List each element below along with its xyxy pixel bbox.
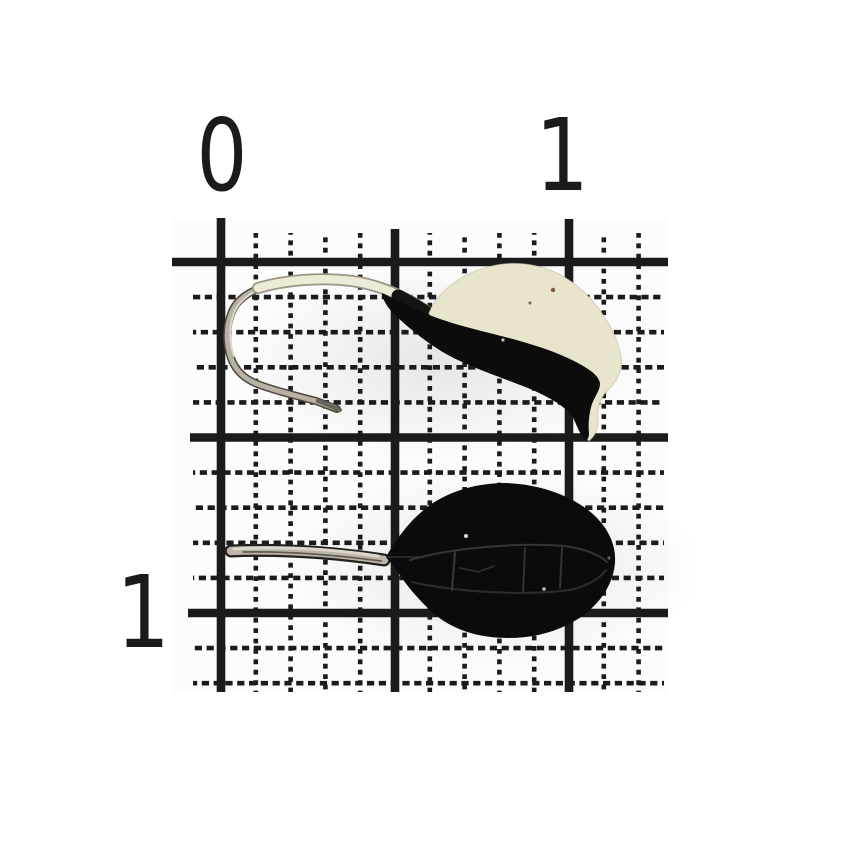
speck-gray [529, 302, 532, 305]
body-glint-1 [464, 534, 468, 538]
photo-of-jigs-on-graph-paper: 0 1 1 [0, 0, 850, 850]
body-glint-2 [542, 587, 546, 591]
speck-brown [551, 288, 555, 292]
ruler-label-top-0: 0 [197, 98, 248, 214]
paper-tint [172, 218, 668, 694]
belly-glint [501, 338, 504, 341]
body-glint-3 [607, 556, 610, 559]
ruler-label-top-1: 1 [535, 97, 589, 213]
scene-svg: 0 1 1 [0, 0, 850, 850]
ruler-label-left-1: 1 [116, 554, 170, 670]
